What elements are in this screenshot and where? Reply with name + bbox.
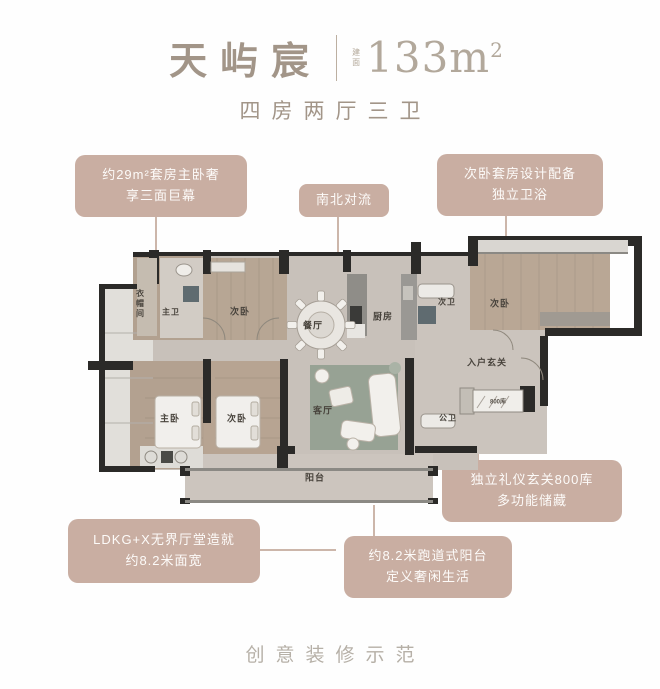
room-label-bedroom-top: 次卧 bbox=[230, 305, 250, 318]
title-divider bbox=[336, 35, 337, 81]
callout-ldkg: LDKG+X无界厅堂造就 约8.2米面宽 bbox=[68, 519, 260, 583]
connector-line bbox=[260, 549, 336, 551]
room-label-public-bath: 公卫 bbox=[439, 413, 457, 424]
callout-master-suite: 约29m²套房主卧奢 享三面巨幕 bbox=[75, 155, 247, 217]
layout-subtitle: 四房两厅三卫 bbox=[0, 95, 660, 125]
callout-airflow: 南北对流 bbox=[299, 184, 389, 217]
room-label-bedroom-mid: 次卧 bbox=[227, 412, 247, 425]
room-label-dining: 餐厅 bbox=[303, 319, 323, 332]
callout-second-suite: 次卧套房设计配备 独立卫浴 bbox=[437, 154, 603, 216]
room-label-bedroom-right: 次卧 bbox=[490, 297, 510, 310]
floor-plan: 衣帽间 主卫 次卧 餐厅 厨房 次卫 次卧 入户玄关 主卧 次卧 客厅 公卫 阳… bbox=[85, 228, 645, 520]
room-label-master-bath: 主卫 bbox=[162, 307, 180, 318]
project-title: 天屿宸 bbox=[156, 30, 322, 85]
header: 天屿宸 建面 133m2 四房两厅三卫 bbox=[0, 30, 660, 125]
room-label-cabinet: 800库 bbox=[490, 397, 506, 406]
footer-caption: 创意装修示范 bbox=[0, 640, 660, 667]
room-label-second-bath: 次卫 bbox=[438, 297, 456, 308]
room-label-cloakroom: 衣帽间 bbox=[135, 289, 146, 319]
area-value: 133m2 bbox=[366, 33, 504, 82]
room-label-kitchen: 厨房 bbox=[373, 310, 393, 323]
room-label-entry-foyer: 入户玄关 bbox=[467, 356, 507, 369]
room-label-living: 客厅 bbox=[313, 404, 333, 417]
floor-plan-drawing bbox=[85, 228, 645, 520]
callout-runway-balcony: 约8.2米跑道式阳台 定义奢闲生活 bbox=[344, 536, 512, 598]
area-label: 建面 bbox=[351, 48, 361, 67]
room-label-master-bedroom: 主卧 bbox=[160, 412, 180, 425]
poster: 天屿宸 建面 133m2 四房两厅三卫 约29m²套房主卧奢 享三面巨幕 南北对… bbox=[0, 0, 660, 689]
room-label-balcony: 阳台 bbox=[305, 471, 325, 484]
